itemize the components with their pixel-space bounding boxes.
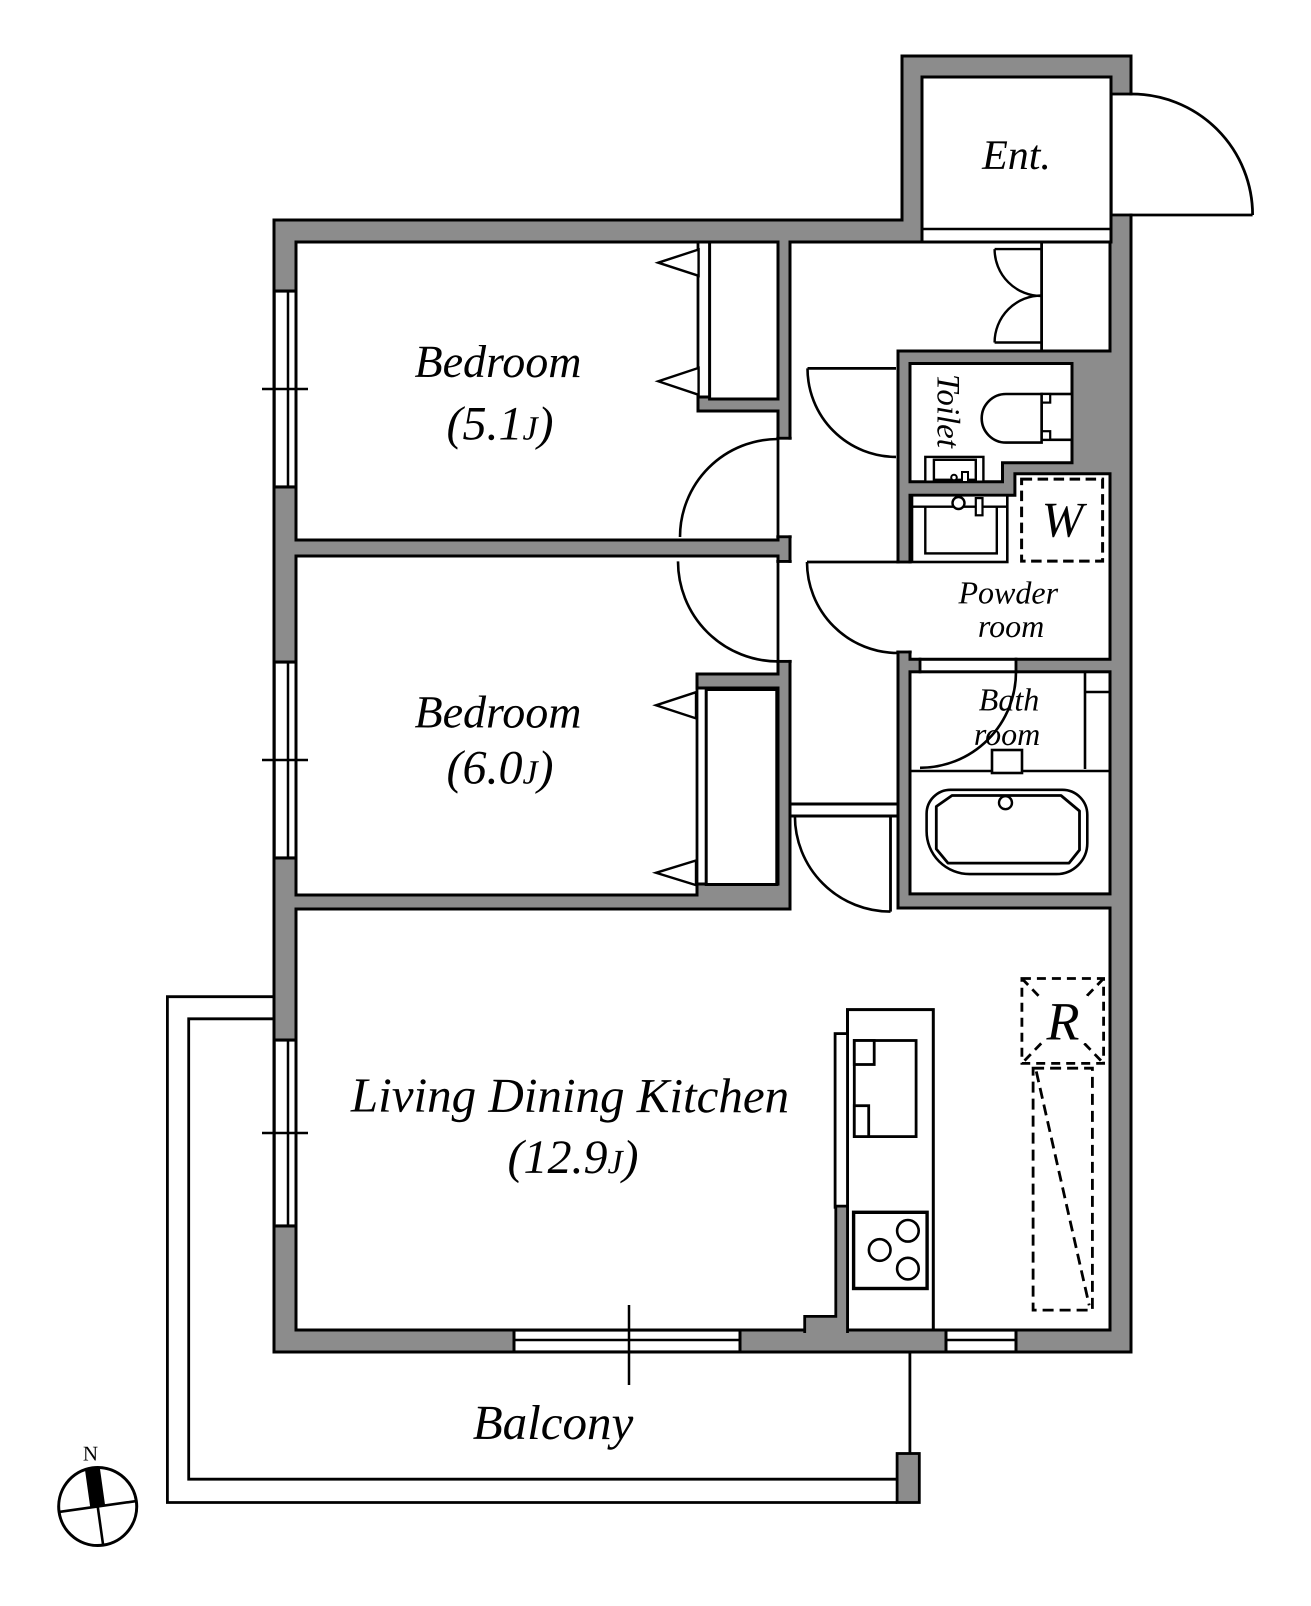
svg-text:R: R — [1045, 991, 1079, 1051]
svg-text:Living Dining Kitchen: Living Dining Kitchen — [350, 1068, 789, 1124]
svg-text:room: room — [978, 608, 1044, 644]
svg-text:Bath: Bath — [979, 681, 1040, 717]
svg-text:Ent.: Ent. — [981, 133, 1051, 179]
svg-text:Bedroom: Bedroom — [415, 336, 582, 387]
svg-text:Toilet: Toilet — [930, 374, 966, 449]
svg-text:room: room — [974, 716, 1040, 752]
svg-text:Bedroom: Bedroom — [415, 686, 582, 737]
svg-text:W: W — [1042, 491, 1088, 547]
svg-text:(5.1J): (5.1J) — [446, 397, 553, 450]
svg-text:Powder: Powder — [958, 574, 1059, 610]
svg-text:Balcony: Balcony — [473, 1395, 634, 1450]
svg-text:(6.0J): (6.0J) — [446, 741, 553, 794]
svg-text:N: N — [83, 1441, 98, 1465]
